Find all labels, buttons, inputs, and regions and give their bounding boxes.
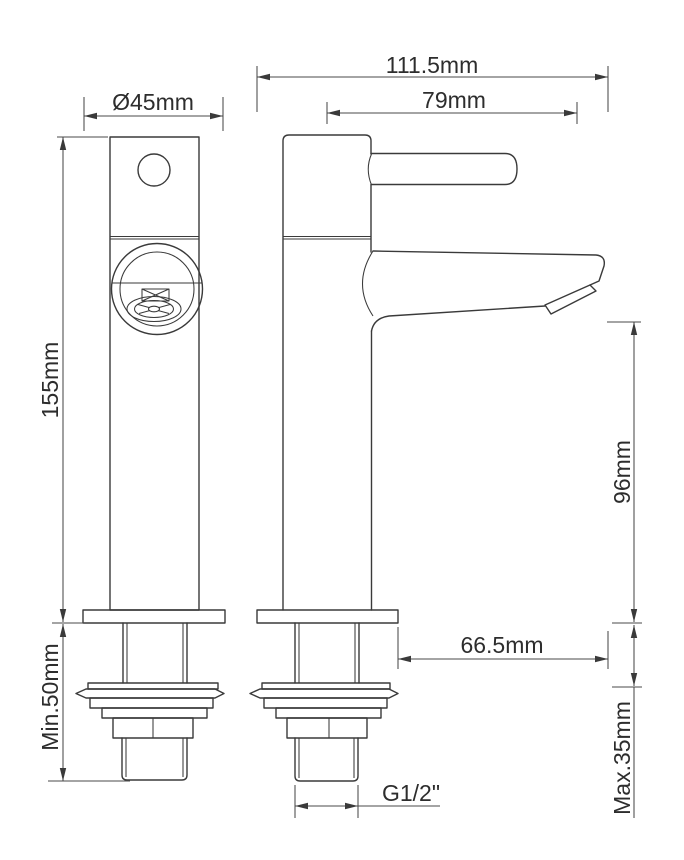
side-washer-plate-1	[262, 683, 390, 689]
side-upper-shank	[295, 623, 359, 683]
spout-body-intersection-arc	[363, 251, 374, 316]
front-base-plate	[83, 610, 225, 623]
dimension-annotations: Ø45mm 111.5mm 79mm 155mm Min	[37, 52, 642, 818]
front-spout-assembly	[112, 244, 203, 335]
technical-drawing-page: Ø45mm 111.5mm 79mm 155mm Min	[0, 0, 684, 860]
side-lever-handle	[371, 154, 517, 185]
aerator-housing-cross	[142, 289, 169, 301]
side-threaded-tail-thread	[299, 738, 354, 778]
dim-label-spout-reach-upper: 79mm	[422, 87, 486, 113]
dim-spout-reach-lower: 66.5mm	[398, 627, 608, 669]
side-body-seam	[283, 237, 371, 240]
front-gasket	[76, 689, 224, 698]
dim-label-height-above-deck: 155mm	[37, 342, 63, 419]
side-washer-plate-3	[276, 708, 381, 718]
side-spout	[363, 251, 605, 331]
front-lever-end-circle	[138, 154, 170, 186]
front-washer-plate-1	[88, 683, 218, 689]
side-body	[283, 135, 372, 610]
side-base-plate	[257, 610, 398, 623]
front-threaded-tail	[122, 738, 187, 780]
dim-label-spout-reach-lower: 66.5mm	[460, 632, 543, 658]
dim-label-outlet-height: 96mm	[609, 440, 635, 504]
dim-label-overall-depth: 111.5mm	[386, 52, 478, 78]
front-washer-plate-2	[90, 698, 213, 708]
dim-label-min-clearance: Min.50mm	[37, 643, 63, 750]
dim-max-deck-thickness: Max.35mm	[609, 625, 642, 818]
side-lever-joint-arc	[368, 154, 371, 185]
dim-label-thread-size: G1/2"	[382, 780, 440, 806]
side-view	[250, 135, 604, 781]
front-view	[76, 137, 225, 780]
front-upper-shank-thread	[127, 623, 183, 683]
dim-label-base-diameter: Ø45mm	[112, 89, 194, 115]
front-body-seam	[110, 237, 199, 240]
dim-base-diameter: Ø45mm	[84, 89, 223, 131]
front-washer-plate-3	[102, 708, 207, 718]
dim-label-max-deck-thickness: Max.35mm	[609, 701, 635, 815]
front-upper-shank	[123, 623, 187, 683]
side-lock-nut	[287, 718, 367, 738]
front-mounting-shank	[76, 623, 224, 780]
dim-spout-reach-upper: 79mm	[327, 87, 577, 124]
aerator-center	[149, 306, 160, 312]
spout-bottom-edge	[372, 306, 546, 331]
dim-outlet-height: 96mm	[607, 322, 642, 623]
dim-min-clearance: Min.50mm	[37, 624, 130, 781]
front-threaded-tail-thread	[126, 738, 183, 777]
front-body	[110, 137, 199, 610]
spout-top-edge	[373, 251, 604, 285]
side-upper-shank-thread	[299, 623, 355, 683]
aerator-inner-ellipse	[135, 301, 174, 318]
side-gasket	[250, 689, 398, 698]
spout-aerator-tip	[545, 285, 596, 314]
side-washer-plate-2	[264, 698, 387, 708]
dim-height-above-deck: 155mm	[37, 137, 108, 623]
dim-thread-size: G1/2"	[295, 780, 440, 818]
faucet-dimension-drawing: Ø45mm 111.5mm 79mm 155mm Min	[0, 0, 684, 860]
side-threaded-tail	[295, 738, 358, 781]
side-mounting-shank	[250, 623, 398, 781]
